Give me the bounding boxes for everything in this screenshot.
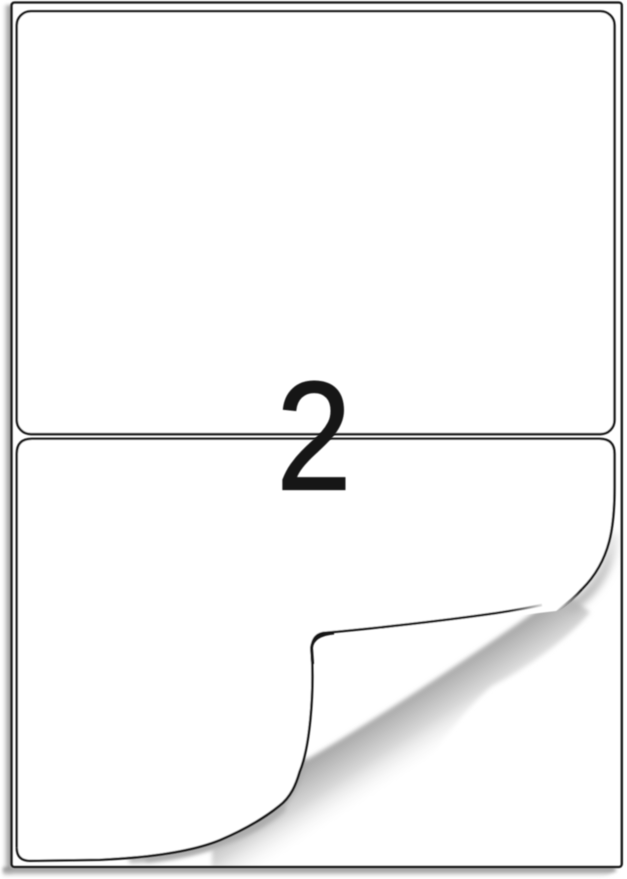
svg-text:2: 2	[276, 349, 352, 522]
